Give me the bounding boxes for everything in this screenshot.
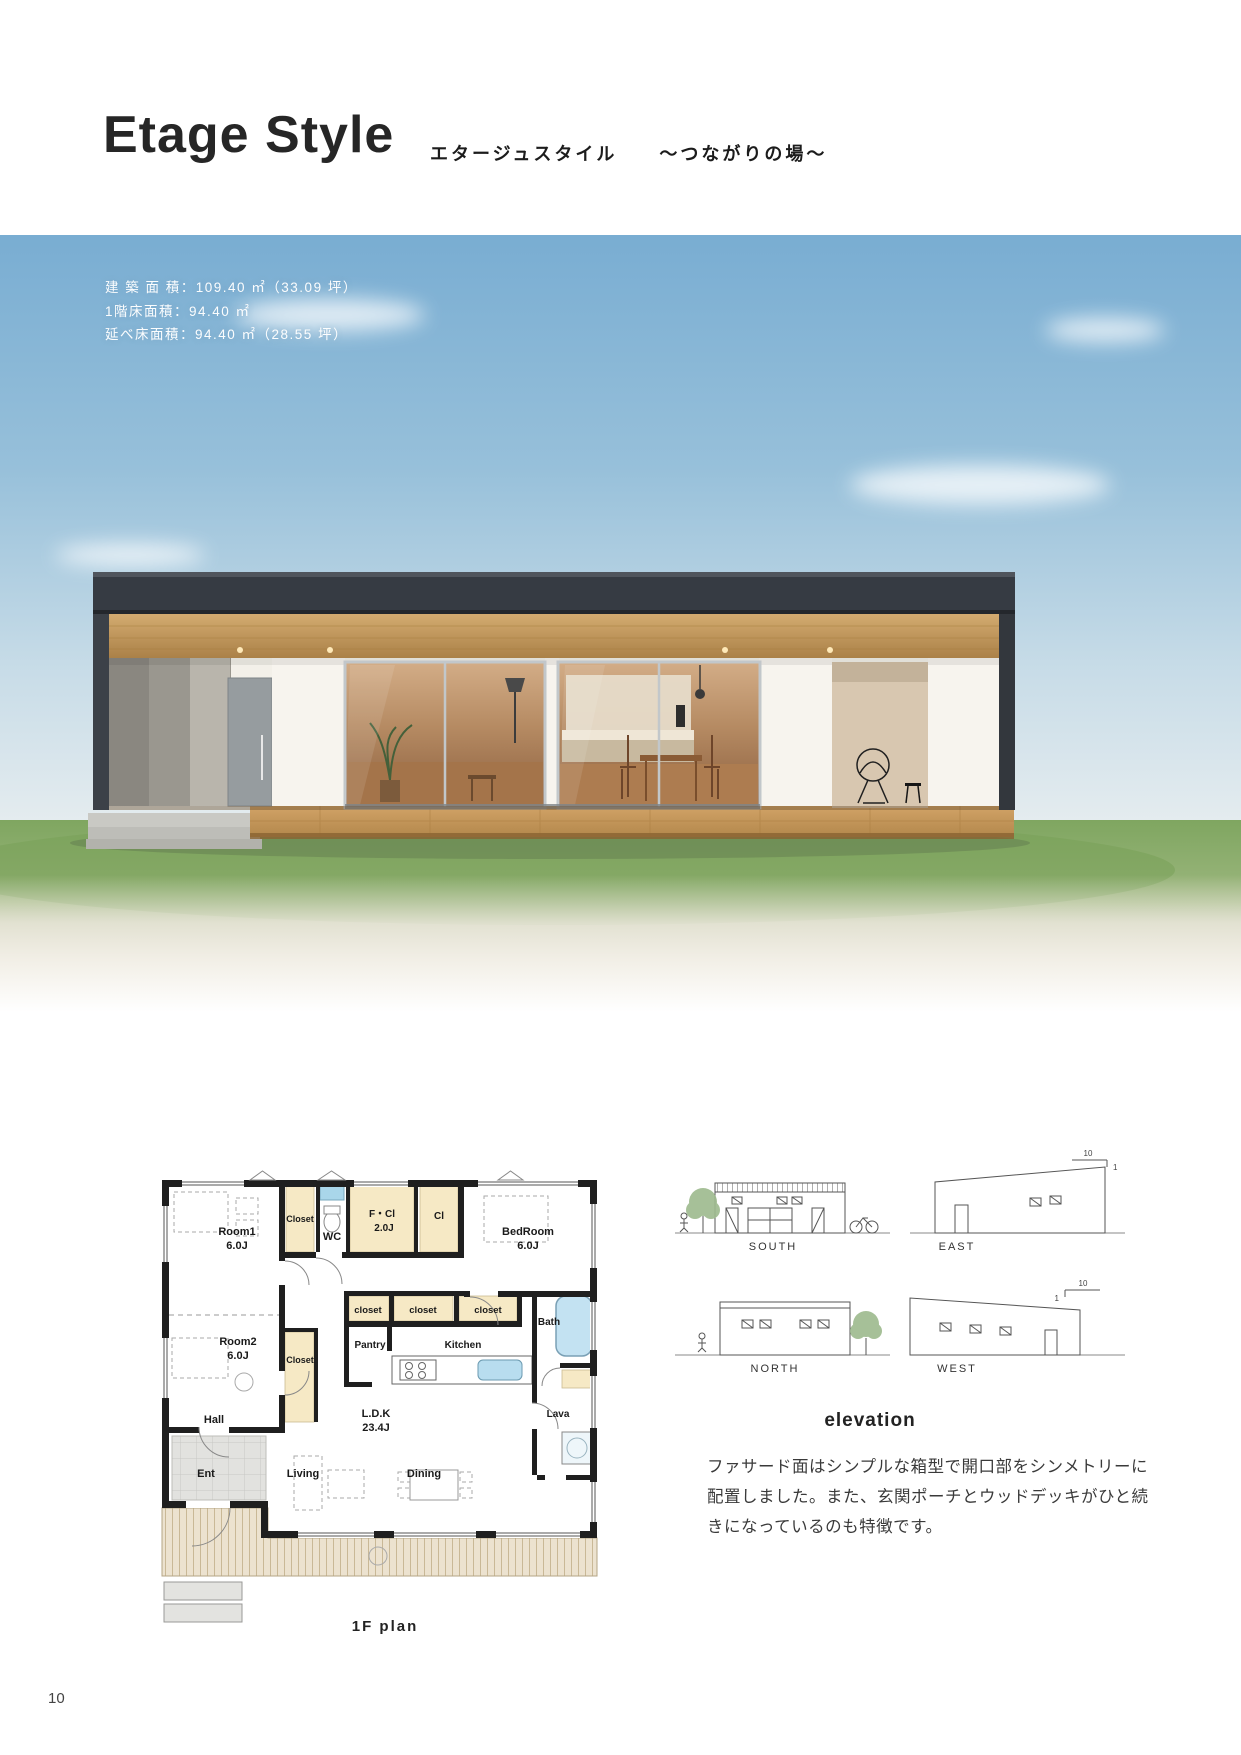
subtitle-row: エタージュスタイル〜つながりの場〜 — [430, 140, 827, 166]
toilet — [324, 1212, 340, 1232]
porch-step — [164, 1582, 242, 1600]
wc-sink — [320, 1186, 344, 1200]
page-number: 10 — [48, 1690, 65, 1707]
floor-plan: Room1 6.0J Closet WC F・Cl 2.0J Cl BedRoo… — [148, 1170, 608, 1628]
hero-photo: 建 築 面 積：109.40 ㎡（33.09 坪） 1階床面積：94.40 ㎡ … — [0, 235, 1241, 1012]
dining-table — [640, 755, 702, 761]
elevation-drawings: 10 1 10 1 SOUTH — [660, 1140, 1140, 1406]
plan-label-hall: Hall — [204, 1414, 224, 1426]
elevation-label-north: NORTH — [751, 1363, 800, 1375]
stove — [400, 1360, 436, 1380]
elevation-caption: elevation — [760, 1410, 980, 1432]
plan-label-wc: WC — [323, 1231, 341, 1243]
east-slope-rise: 1 — [1113, 1163, 1118, 1172]
plan-label-fcl: F・Cl — [369, 1209, 395, 1220]
plan-label-lava: Lava — [547, 1409, 570, 1420]
plan-label-closet-c: closet — [474, 1305, 502, 1316]
description-line-1: ファサード面はシンプルな箱型で開口部をシンメトリーに — [707, 1452, 1167, 1482]
plan-label-ent: Ent — [197, 1468, 215, 1480]
floor-plan-caption: 1F plan — [285, 1618, 485, 1635]
description-text: ファサード面はシンプルな箱型で開口部をシンメトリーに 配置しました。また、玄関ポ… — [707, 1452, 1167, 1542]
area-specs: 建 築 面 積：109.40 ㎡（33.09 坪） 1階床面積：94.40 ㎡ … — [105, 276, 358, 347]
spec-line-1f-floor-area: 1階床面積：94.40 ㎡ — [105, 300, 358, 324]
plan-label-closet1: Closet — [286, 1214, 314, 1224]
tagline-jp: 〜つながりの場〜 — [659, 144, 827, 164]
plan-label-pantry: Pantry — [354, 1340, 386, 1351]
plan-label-closet-b: closet — [409, 1305, 437, 1316]
entrance-steps — [86, 813, 262, 849]
plan-label-dining: Dining — [407, 1468, 441, 1480]
spec-line-building-area: 建 築 面 積：109.40 ㎡（33.09 坪） — [105, 276, 358, 300]
plan-label-closet2: Closet — [286, 1355, 314, 1365]
brochure-page: Etage Style エタージュスタイル〜つながりの場〜 — [0, 0, 1241, 1755]
glass-door-right — [558, 662, 760, 808]
elevation-south — [680, 1183, 878, 1233]
elevation-east — [935, 1160, 1107, 1233]
plan-label-bedroom: BedRoom — [502, 1226, 554, 1238]
description-line-2: 配置しました。また、玄関ポーチとウッドデッキがひと続 — [707, 1482, 1167, 1512]
plan-label-closet-a: closet — [354, 1305, 382, 1316]
west-slope-run: 10 — [1079, 1279, 1088, 1288]
plan-label-fcl-size: 2.0J — [374, 1223, 393, 1234]
plan-label-cl: Cl — [434, 1211, 444, 1222]
west-slope-rise: 1 — [1055, 1294, 1060, 1303]
porch-step — [164, 1604, 242, 1622]
gravel-foreground — [0, 875, 1241, 1012]
house — [93, 572, 1015, 810]
plan-label-room2: Room2 — [219, 1336, 256, 1348]
elevation-label-west: WEST — [937, 1363, 977, 1375]
plan-label-room1-size: 6.0J — [226, 1240, 247, 1252]
glass-door-left — [345, 662, 545, 808]
wood-deck — [250, 805, 1014, 839]
elevation-label-south: SOUTH — [749, 1241, 798, 1253]
description-line-3: きになっているのも特徴です。 — [707, 1512, 1167, 1542]
plan-label-bath: Bath — [538, 1317, 560, 1328]
east-slope-run: 10 — [1084, 1149, 1093, 1158]
plan-label-room1: Room1 — [218, 1226, 255, 1238]
house-render — [0, 235, 1241, 1012]
entrance-tile — [172, 1436, 266, 1500]
entry-door — [228, 678, 272, 806]
kitchen-sink — [478, 1360, 522, 1380]
side-porch — [832, 662, 928, 808]
plan-label-kitchen: Kitchen — [445, 1340, 482, 1351]
spec-line-total-floor-area: 延べ床面積：94.40 ㎡（28.55 坪） — [105, 323, 358, 347]
plan-label-bedroom-size: 6.0J — [517, 1240, 538, 1252]
plan-label-ldk-size: 23.4J — [362, 1422, 390, 1434]
plan-label-ldk: L.D.K — [362, 1408, 391, 1420]
page-title: Etage Style — [103, 105, 394, 165]
plan-label-room2-size: 6.0J — [227, 1350, 248, 1362]
flat-roof — [93, 572, 1015, 614]
plan-label-living: Living — [287, 1468, 319, 1480]
elevation-north — [698, 1302, 882, 1355]
elevation-west — [910, 1290, 1100, 1355]
vent-marks — [250, 1171, 523, 1180]
bathtub — [556, 1296, 592, 1356]
elevation-label-east: EAST — [939, 1241, 976, 1253]
subtitle-jp: エタージュスタイル — [430, 144, 617, 164]
